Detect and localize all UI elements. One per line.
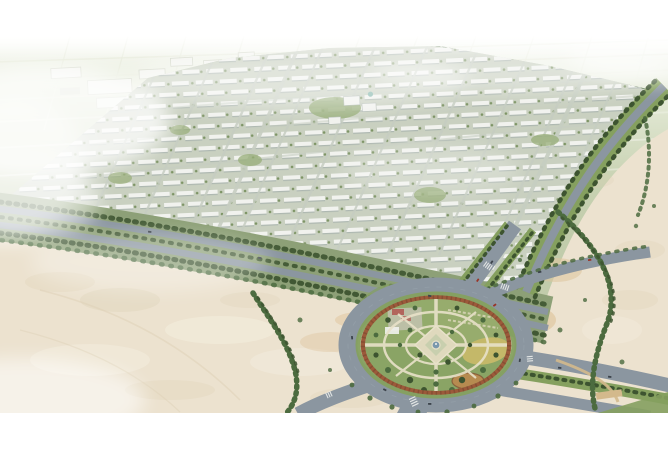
- image-frame: [0, 0, 668, 452]
- roundabout: [348, 277, 524, 415]
- letterbox-bottom: [0, 413, 668, 452]
- photo-area: [0, 27, 668, 442]
- letterbox-top: [0, 0, 668, 35]
- horizon-fade: [0, 35, 668, 60]
- masterplan-aerial-image: [0, 0, 668, 452]
